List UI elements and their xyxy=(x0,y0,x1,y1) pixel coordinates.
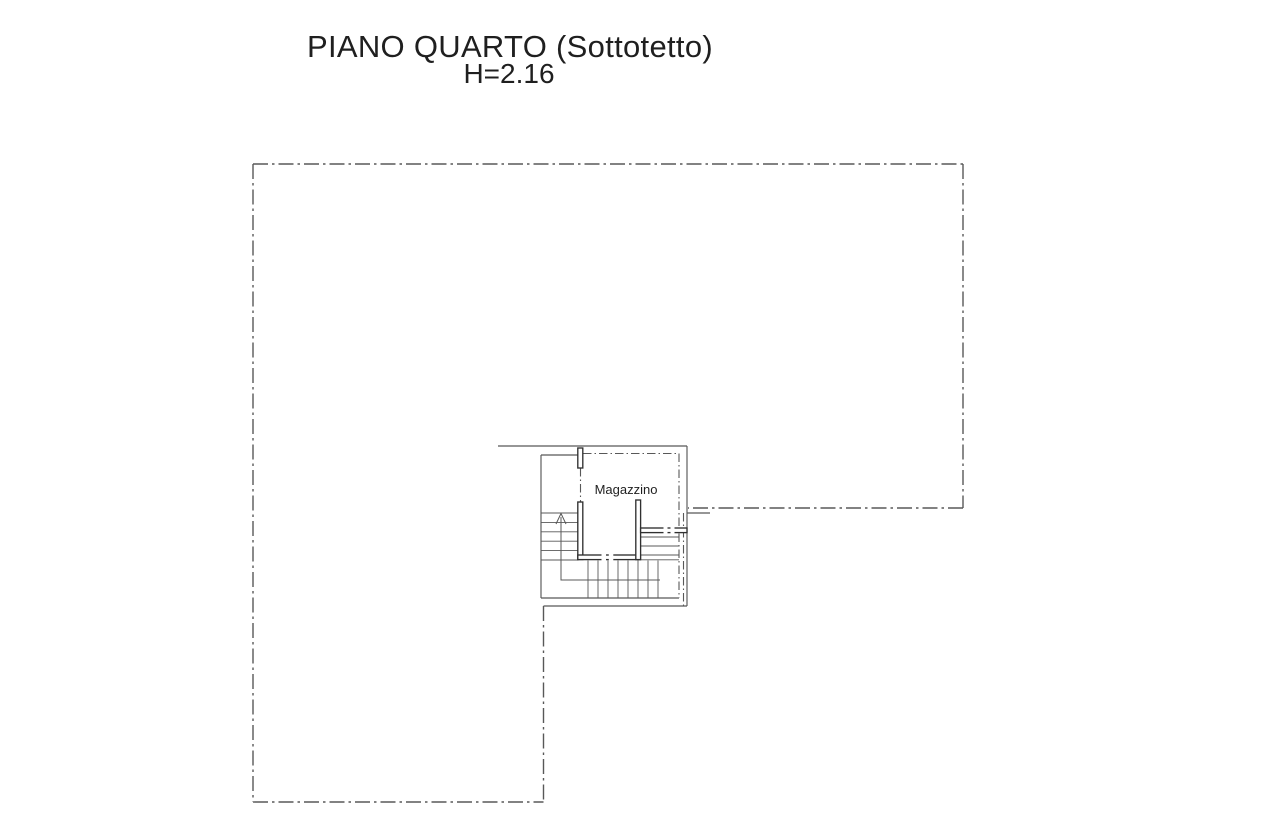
stairwell-walls xyxy=(578,448,687,561)
plan-titles: PIANO QUARTO (Sottotetto) H=2.16 xyxy=(307,29,713,89)
room-label-group: Magazzino xyxy=(595,482,658,497)
floor-plan-canvas: PIANO QUARTO (Sottotetto) H=2.16 xyxy=(0,0,1280,825)
floor-height-note: H=2.16 xyxy=(463,58,554,89)
room-label: Magazzino xyxy=(595,482,658,497)
wall-opening xyxy=(664,527,668,534)
stair-block-outline xyxy=(498,446,710,606)
wall-stub-top xyxy=(578,448,583,468)
walk-line xyxy=(561,517,660,580)
floor-plan-page: PIANO QUARTO (Sottotetto) H=2.16 xyxy=(0,0,1280,825)
wall-opening xyxy=(609,554,614,561)
wall-opening xyxy=(602,554,607,561)
wall-opening xyxy=(671,527,675,534)
stairwell-right-wall xyxy=(636,500,641,560)
stairwell-left-wall xyxy=(578,502,583,560)
wall-bodies xyxy=(578,448,687,560)
